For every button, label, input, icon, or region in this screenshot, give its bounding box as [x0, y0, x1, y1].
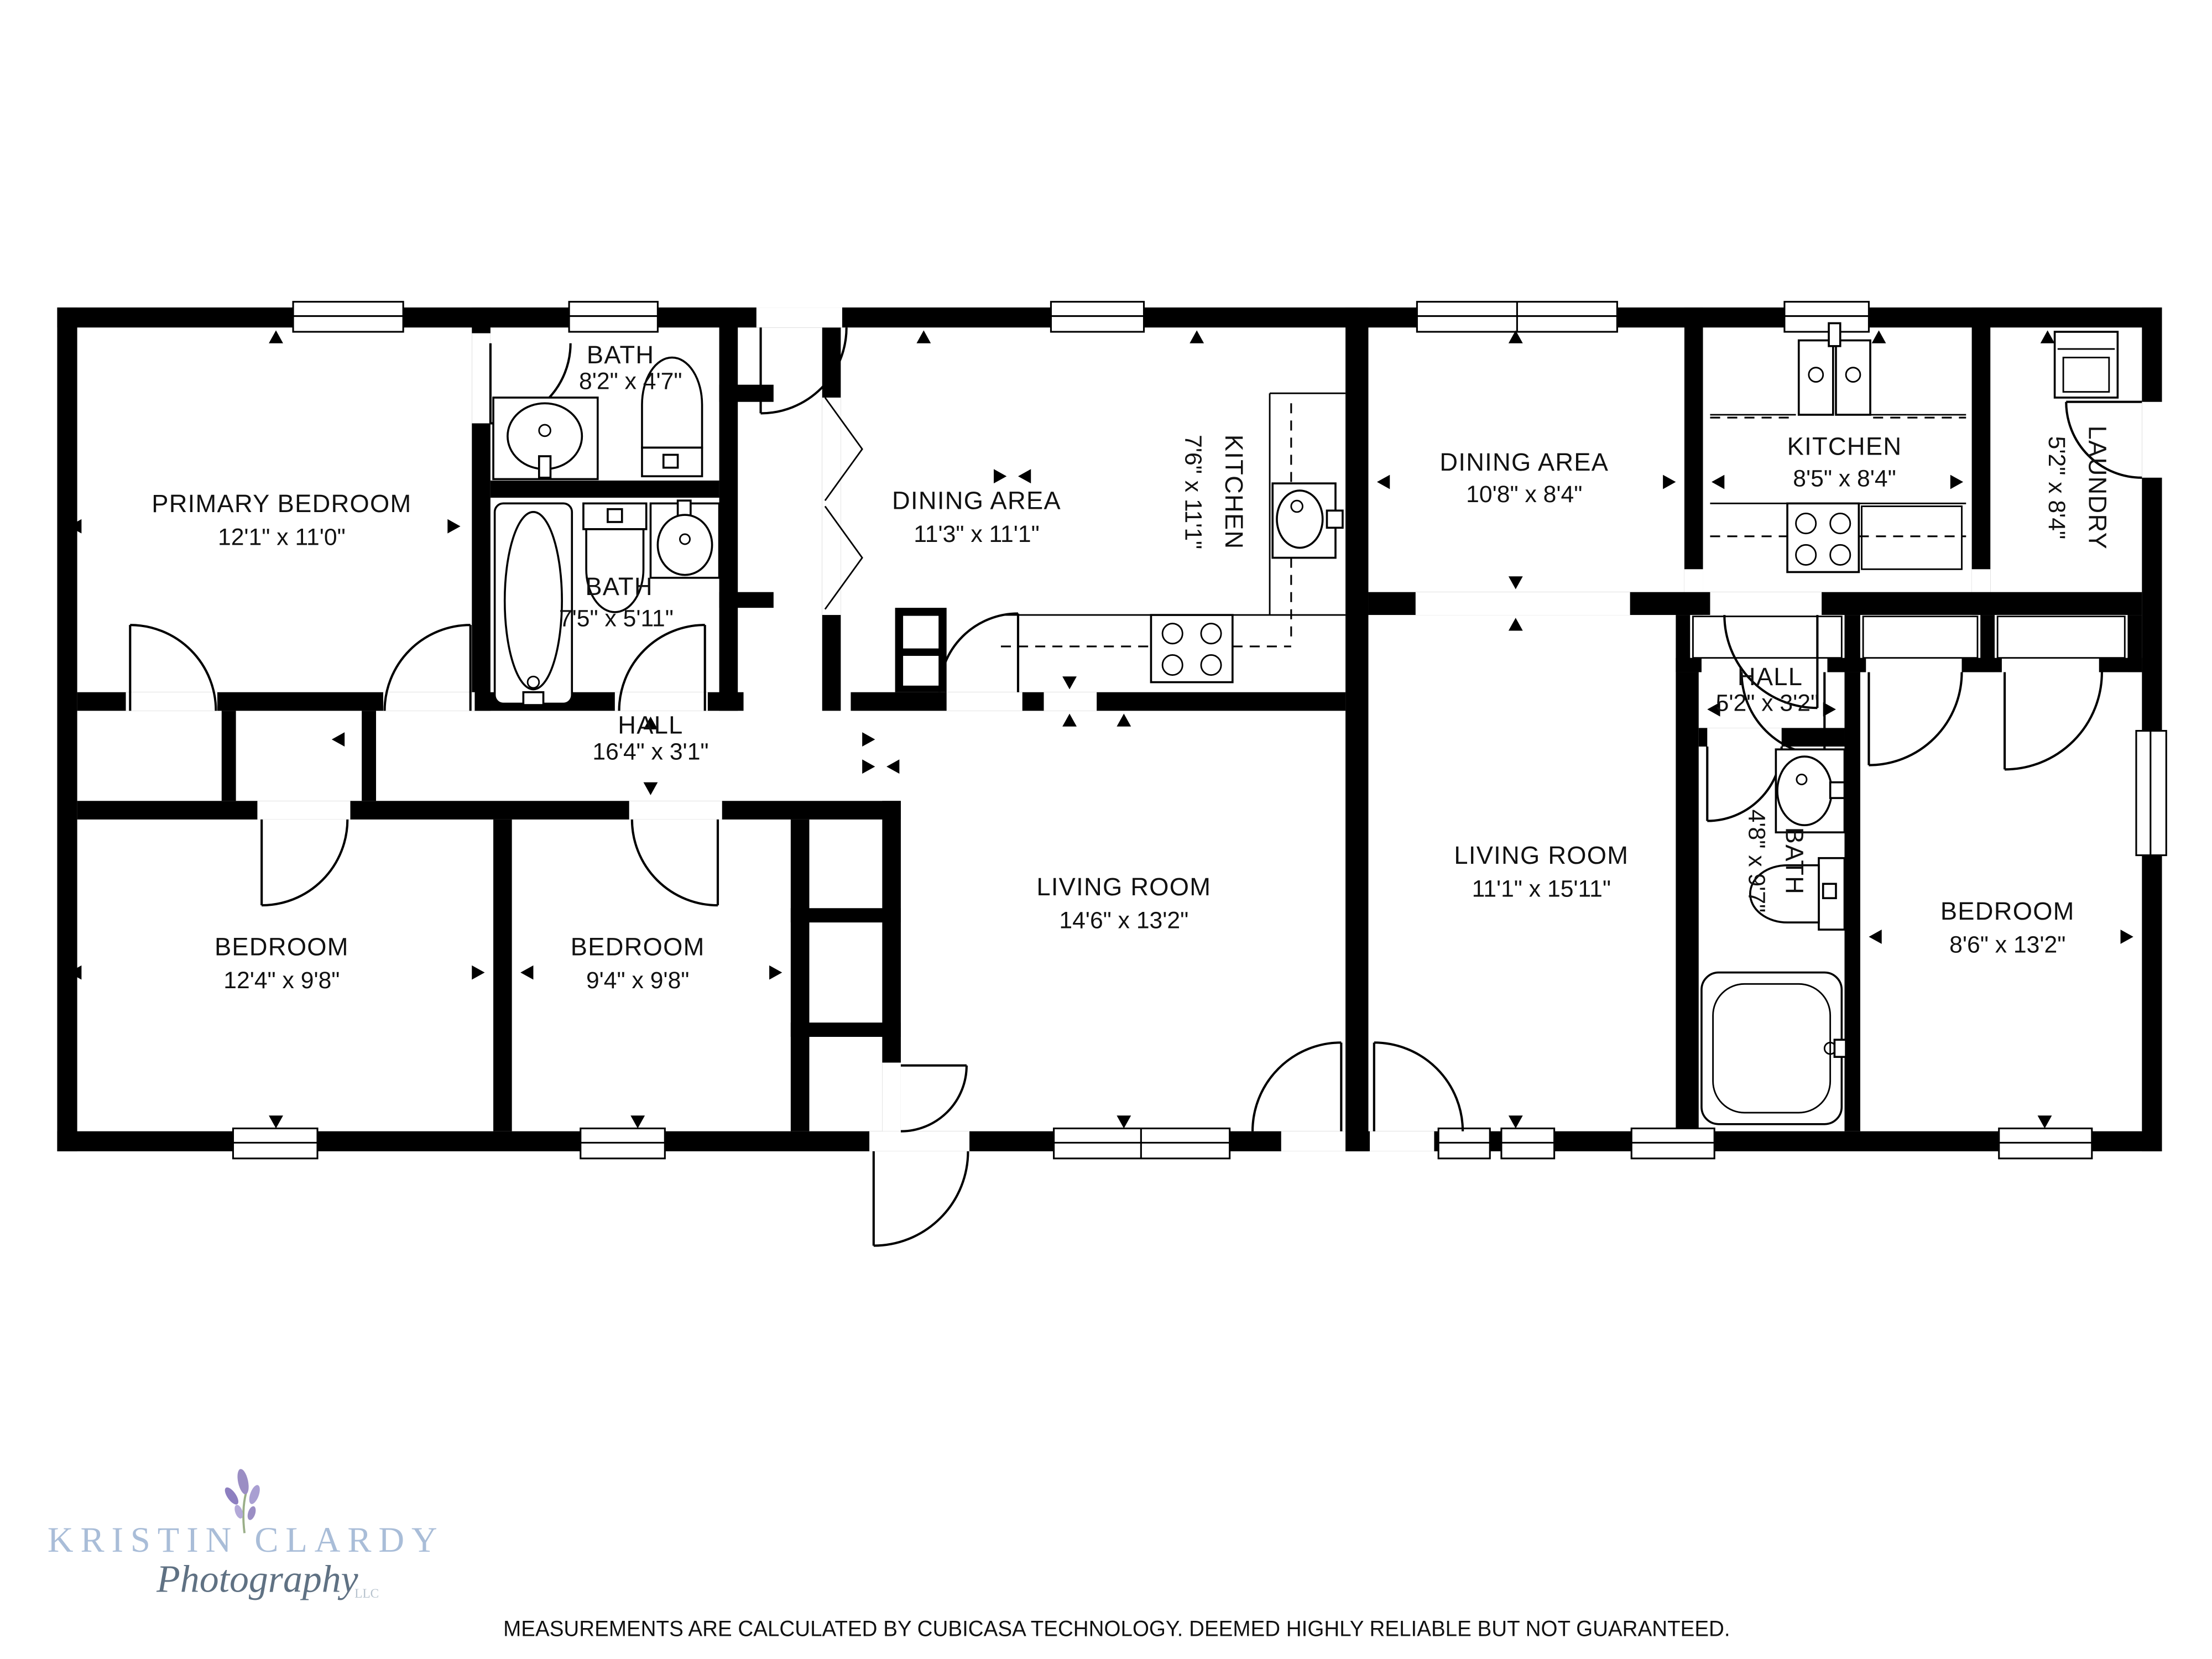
- watermark: KRISTIN CLARDY Photography LLC: [48, 1468, 445, 1601]
- room-label-bath-right: BATH: [1780, 827, 1808, 895]
- room-label-hall-right: HALL: [1738, 662, 1803, 691]
- room-label-bath-1: BATH: [587, 341, 654, 369]
- room-label-living-left: LIVING ROOM: [1036, 873, 1211, 901]
- room-label-bedroom-2: BEDROOM: [571, 933, 705, 961]
- room-label-bath-2: BATH: [585, 572, 653, 601]
- stove-icon: [1151, 615, 1232, 682]
- room-dims-primary-bedroom: 12'1" x 11'0": [218, 524, 346, 550]
- room-dims-bath-2: 7'5" x 5'11": [559, 606, 674, 632]
- door-living-left: [901, 1066, 967, 1131]
- closet-outlines: [1693, 617, 2125, 658]
- room-label-bedroom-3: BEDROOM: [1940, 897, 2075, 925]
- room-dims-kitchen-right: 8'5" x 8'4": [1793, 465, 1896, 492]
- room-dims-bath-1: 8'2" x 4'7": [579, 368, 682, 394]
- door-bedroom1: [262, 820, 347, 905]
- room-dims-living-right: 11'1" x 15'11": [1472, 876, 1611, 902]
- watermark-title: KRISTIN CLARDY: [48, 1520, 445, 1559]
- bathtub-icon: [495, 503, 572, 705]
- room-dims-bedroom-3: 8'6" x 13'2": [1949, 931, 2065, 958]
- room-dims-hall-left: 16'4" x 3'1": [592, 738, 708, 765]
- room-label-laundry: LAUNDRY: [2084, 426, 2112, 550]
- room-label-kitchen-right: KITCHEN: [1787, 432, 1902, 460]
- sink-icon: [650, 500, 719, 578]
- sink-icon: [1776, 749, 1844, 832]
- sink-icon: [493, 398, 598, 479]
- room-dims-hall-right: 5'2" x 3'2": [1716, 690, 1819, 716]
- door-bedroom3-closet: [2005, 672, 2102, 770]
- door-front-left: [1253, 1042, 1341, 1131]
- room-label-dining-right: DINING AREA: [1439, 448, 1609, 476]
- room-dims-bedroom-1: 12'4" x 9'8": [223, 967, 340, 994]
- door-bedroom3: [1869, 672, 1961, 765]
- disclaimer-text: MEASUREMENTS ARE CALCULATED BY CUBICASA …: [503, 1617, 1730, 1641]
- watermark-llc: LLC: [354, 1587, 379, 1601]
- door-bedroom2: [632, 820, 718, 905]
- room-label-bedroom-1: BEDROOM: [215, 933, 349, 961]
- bathtub-icon: [1702, 973, 1846, 1124]
- door-back-exterior: [874, 1151, 968, 1246]
- room-dims-bath-right: 4'8" x 9'7": [1743, 810, 1770, 913]
- room-label-kitchen-left: KITCHEN: [1220, 435, 1248, 550]
- room-dims-bedroom-2: 9'4" x 9'8": [586, 967, 689, 994]
- room-label-hall-left: HALL: [618, 711, 683, 739]
- watermark-script: Photography: [156, 1558, 359, 1600]
- floorplan-canvas: PRIMARY BEDROOM 12'1" x 11'0" BATH 8'2" …: [0, 0, 2212, 1659]
- room-dims-living-left: 14'6" x 13'2": [1059, 907, 1188, 933]
- room-dims-dining-right: 10'8" x 8'4": [1466, 481, 1582, 508]
- door-dining-bottom: [940, 613, 1018, 692]
- room-dims-kitchen-left: 7'6" x 11'1": [1180, 435, 1207, 549]
- double-sink-icon: [1799, 323, 1870, 415]
- room-label-primary-bedroom: PRIMARY BEDROOM: [152, 489, 411, 518]
- room-dims-laundry: 5'2" x 8'4": [2043, 436, 2070, 540]
- door-front-right: [1374, 1042, 1463, 1131]
- stove-icon: [1787, 503, 1859, 572]
- room-dims-dining-left: 11'3" x 11'1": [914, 521, 1040, 547]
- room-label-dining-left: DINING AREA: [892, 487, 1061, 515]
- sink-icon: [1272, 483, 1343, 557]
- washer-icon: [2055, 332, 2118, 398]
- room-label-living-right: LIVING ROOM: [1454, 841, 1629, 869]
